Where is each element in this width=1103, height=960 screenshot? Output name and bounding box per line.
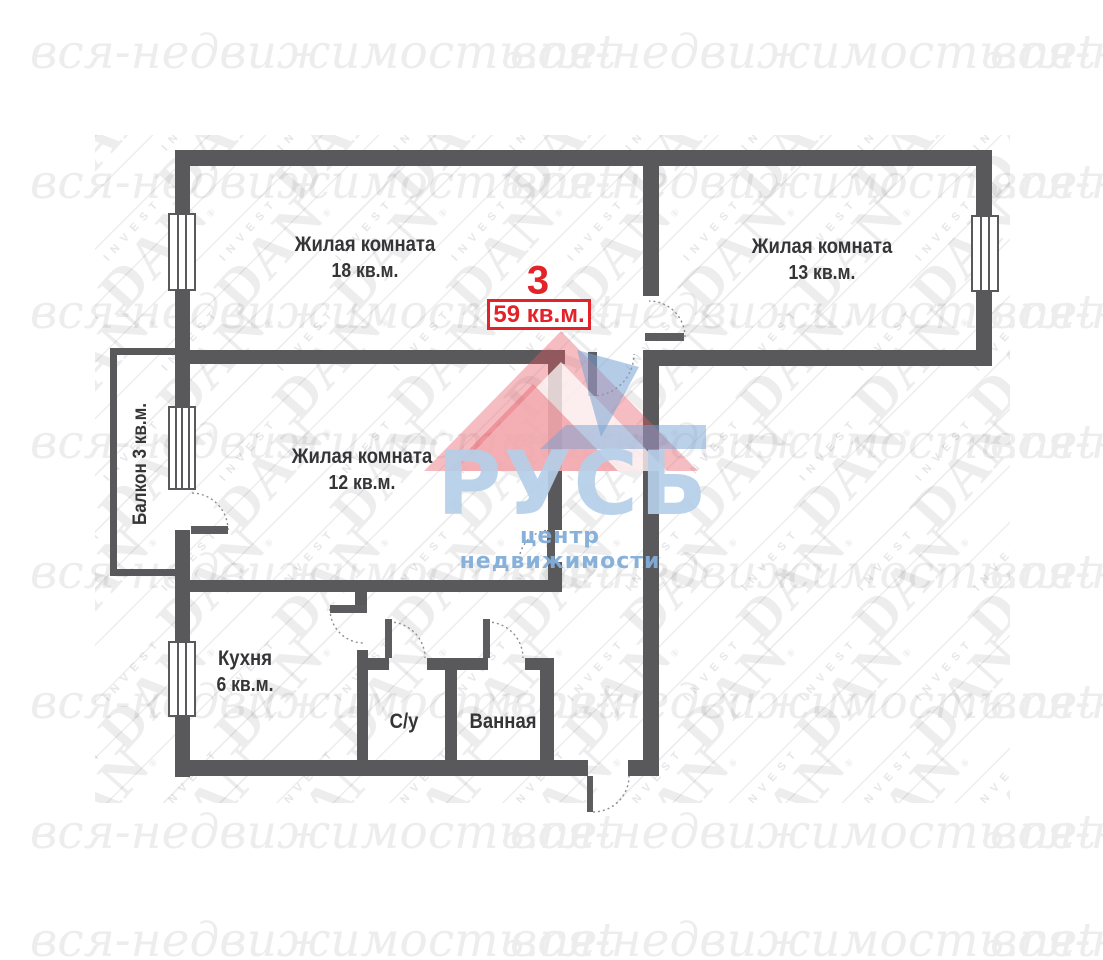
- flat-info: 3 59 кв.м.: [0, 0, 1103, 960]
- floor-plan-page: вся-недвижимость.netвся-недвижимость.net…: [0, 0, 1103, 960]
- flat-number: 3: [527, 259, 549, 304]
- total-area-badge: 59 кв.м.: [487, 299, 591, 330]
